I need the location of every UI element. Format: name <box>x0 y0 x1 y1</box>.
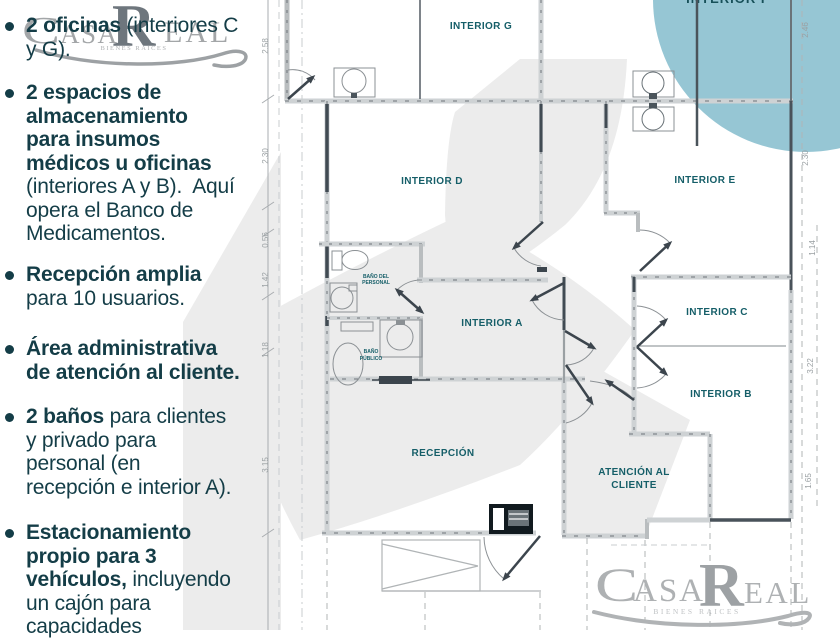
svg-text:PERSONAL: PERSONAL <box>362 280 390 286</box>
svg-text:1.65: 1.65 <box>804 473 813 489</box>
svg-text:1.14: 1.14 <box>808 240 817 256</box>
svg-text:PÚBLICO: PÚBLICO <box>360 355 383 362</box>
svg-text:2.46: 2.46 <box>801 22 810 38</box>
svg-text:1.18: 1.18 <box>261 342 270 358</box>
svg-text:3.22: 3.22 <box>806 358 815 374</box>
svg-text:INTERIOR B: INTERIOR B <box>690 389 752 400</box>
svg-text:CLIENTE: CLIENTE <box>611 480 657 491</box>
svg-text:INTERIOR F: INTERIOR F <box>686 0 770 6</box>
svg-text:ASA: ASA <box>633 573 705 609</box>
svg-text:3.15: 3.15 <box>261 457 270 473</box>
svg-text:0.56: 0.56 <box>261 232 270 248</box>
svg-text:RECEPCIÓN: RECEPCIÓN <box>411 446 474 459</box>
svg-text:INTERIOR G: INTERIOR G <box>450 21 512 32</box>
svg-text:INTERIOR A: INTERIOR A <box>461 318 522 329</box>
svg-text:BAÑO DEL: BAÑO DEL <box>363 273 389 280</box>
svg-text:EAL: EAL <box>744 575 812 610</box>
svg-text:INTERIOR E: INTERIOR E <box>674 175 735 186</box>
svg-text:INTERIOR D: INTERIOR D <box>401 176 463 187</box>
svg-text:BIENES RAICES: BIENES RAICES <box>653 607 740 616</box>
svg-text:1.42: 1.42 <box>261 272 270 288</box>
svg-text:ATENCIÓN AL: ATENCIÓN AL <box>598 465 670 478</box>
svg-text:INTERIOR C: INTERIOR C <box>686 307 748 318</box>
svg-text:C: C <box>595 559 638 612</box>
svg-text:BAÑO: BAÑO <box>364 348 379 355</box>
svg-text:2.58: 2.58 <box>261 38 270 54</box>
svg-text:2.30: 2.30 <box>261 148 270 164</box>
svg-text:2.30: 2.30 <box>801 150 810 166</box>
